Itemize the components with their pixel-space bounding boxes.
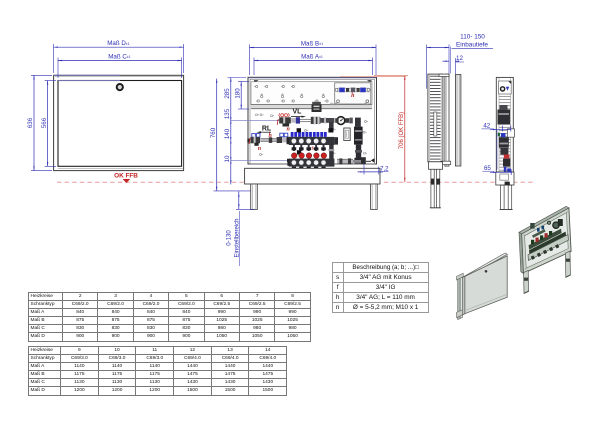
svg-text:12: 12 — [456, 55, 463, 62]
svg-text:706 (OK FFB): 706 (OK FFB) — [399, 112, 405, 149]
svg-text:RL: RL — [262, 126, 272, 133]
svg-text:VL: VL — [293, 109, 303, 116]
svg-text:110- 150: 110- 150 — [460, 34, 485, 41]
svg-text:760: 760 — [210, 127, 217, 138]
svg-text:42: 42 — [483, 123, 490, 130]
svg-text:180: 180 — [234, 88, 241, 99]
svg-text:OK FFB: OK FFB — [114, 173, 138, 180]
svg-text:10: 10 — [224, 155, 231, 162]
svg-text:140: 140 — [224, 128, 231, 139]
svg-text:285: 285 — [224, 88, 231, 99]
svg-text:0-130: 0-130 — [227, 230, 233, 246]
svg-text:636: 636 — [27, 117, 34, 128]
svg-text:566: 566 — [41, 117, 48, 128]
svg-text:135: 135 — [224, 108, 231, 119]
svg-text:65: 65 — [484, 165, 491, 172]
svg-text:Einbautiefe: Einbautiefe — [456, 41, 488, 48]
